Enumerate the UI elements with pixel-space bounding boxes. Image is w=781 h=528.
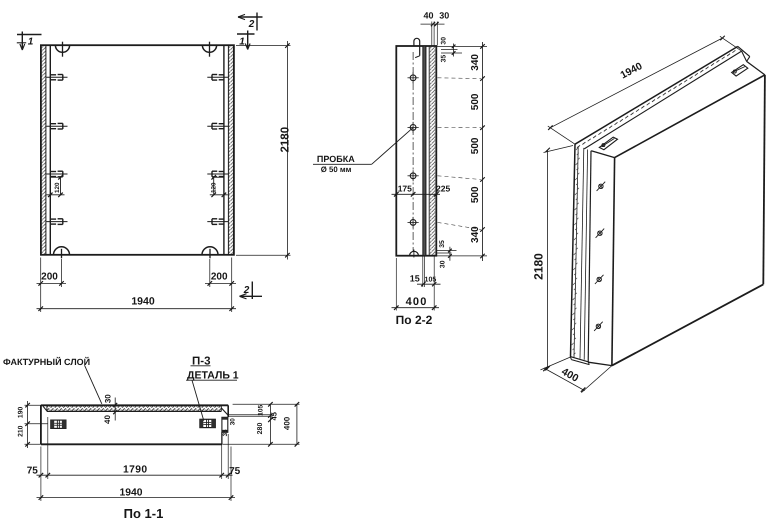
svg-text:30: 30: [104, 394, 113, 403]
svg-text:500: 500: [470, 93, 481, 110]
svg-text:1940: 1940: [120, 487, 143, 498]
svg-text:120: 120: [54, 182, 61, 193]
svg-text:ФАКТУРНЫЙ СЛОЙ: ФАКТУРНЫЙ СЛОЙ: [3, 356, 90, 367]
svg-text:105: 105: [425, 277, 437, 284]
svg-text:200: 200: [41, 272, 58, 283]
svg-text:400: 400: [283, 416, 292, 430]
svg-text:30: 30: [440, 37, 447, 45]
svg-text:2180: 2180: [280, 127, 292, 153]
svg-text:175: 175: [398, 183, 412, 193]
svg-text:2180: 2180: [532, 253, 546, 280]
svg-text:Ø 50 мм: Ø 50 мм: [321, 165, 352, 174]
svg-text:15: 15: [410, 273, 420, 283]
svg-text:75: 75: [229, 466, 241, 477]
svg-text:1790: 1790: [123, 464, 148, 475]
svg-text:ПРОБКА: ПРОБКА: [317, 154, 355, 164]
svg-text:280: 280: [257, 423, 264, 435]
svg-text:210: 210: [17, 425, 24, 437]
svg-text:30: 30: [439, 11, 449, 21]
svg-text:500: 500: [470, 137, 481, 154]
svg-text:По 2-2: По 2-2: [396, 313, 433, 327]
svg-text:40: 40: [103, 415, 112, 424]
svg-text:500: 500: [470, 186, 481, 203]
svg-text:2: 2: [248, 19, 255, 30]
svg-text:400: 400: [406, 296, 428, 308]
svg-text:40: 40: [423, 11, 433, 21]
svg-text:200: 200: [211, 272, 228, 283]
svg-text:75: 75: [27, 465, 39, 476]
svg-text:По 1-1: По 1-1: [124, 506, 164, 521]
svg-text:45: 45: [269, 412, 278, 420]
svg-text:120: 120: [210, 182, 217, 193]
svg-text:190: 190: [17, 407, 24, 419]
svg-text:1940: 1940: [131, 295, 155, 307]
svg-text:105: 105: [258, 404, 265, 415]
svg-text:ДЕТАЛЬ 1: ДЕТАЛЬ 1: [187, 369, 239, 381]
svg-text:35: 35: [439, 240, 446, 248]
svg-text:2: 2: [243, 285, 250, 296]
svg-text:35: 35: [441, 55, 448, 63]
svg-text:30: 30: [230, 418, 237, 426]
svg-text:1: 1: [28, 36, 34, 47]
svg-text:225: 225: [436, 183, 450, 193]
svg-text:30: 30: [439, 260, 446, 268]
svg-text:340: 340: [470, 54, 481, 71]
